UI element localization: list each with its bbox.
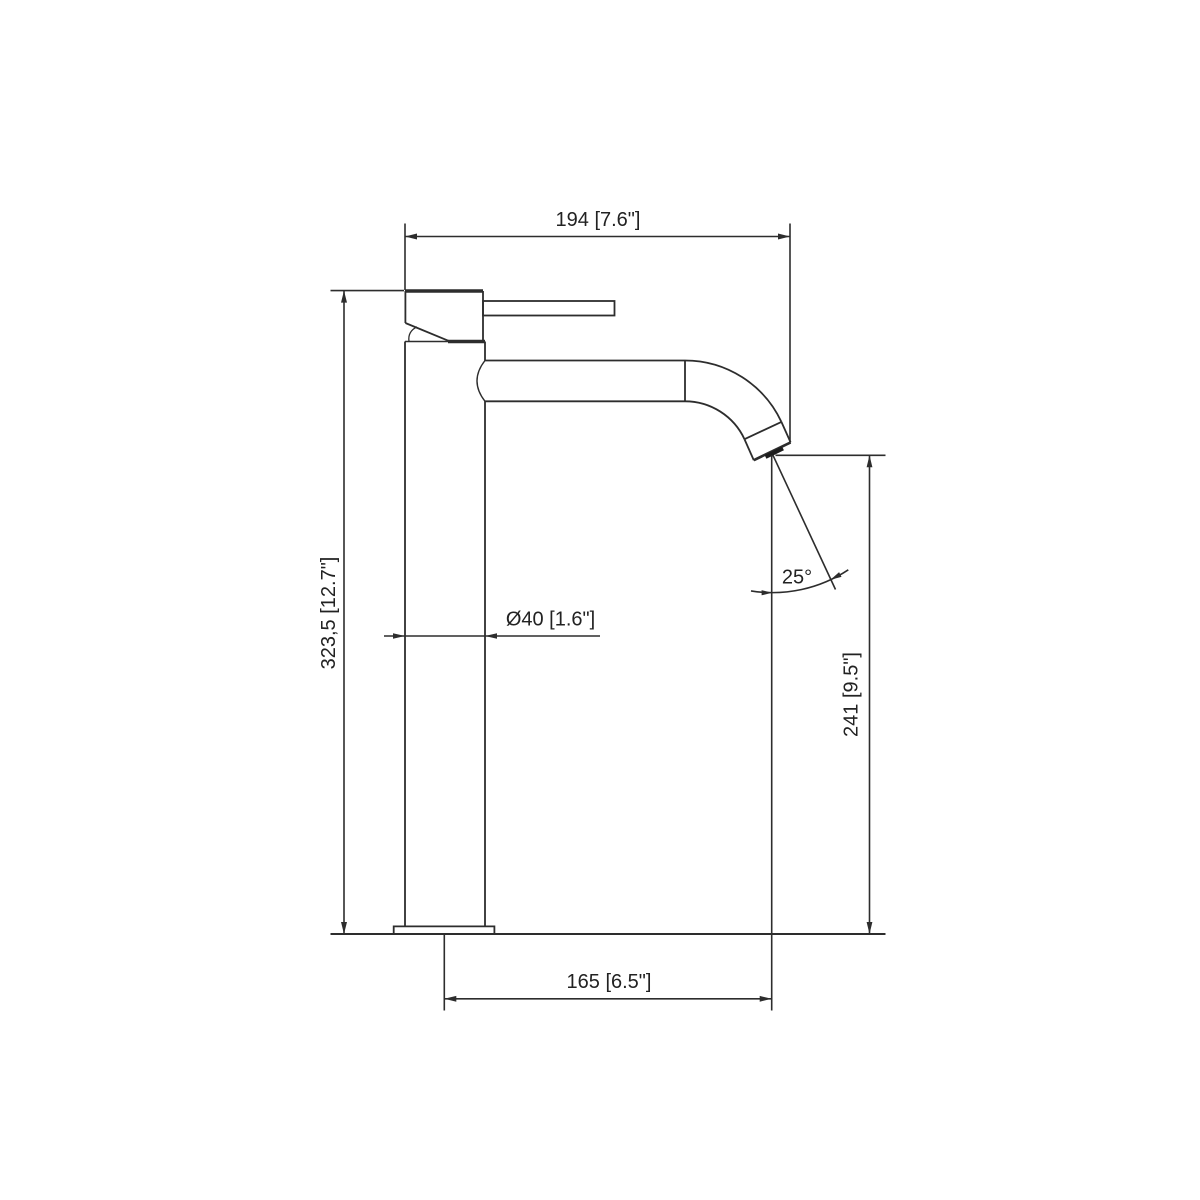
svg-text:323,5 [12.7"]: 323,5 [12.7"] [318,557,340,670]
svg-text:194 [7.6"]: 194 [7.6"] [556,209,641,231]
svg-text:241 [9.5"]: 241 [9.5"] [841,652,863,737]
svg-text:25°: 25° [782,567,812,589]
svg-text:165 [6.5"]: 165 [6.5"] [567,971,652,993]
svg-text:Ø40 [1.6"]: Ø40 [1.6"] [506,609,595,631]
